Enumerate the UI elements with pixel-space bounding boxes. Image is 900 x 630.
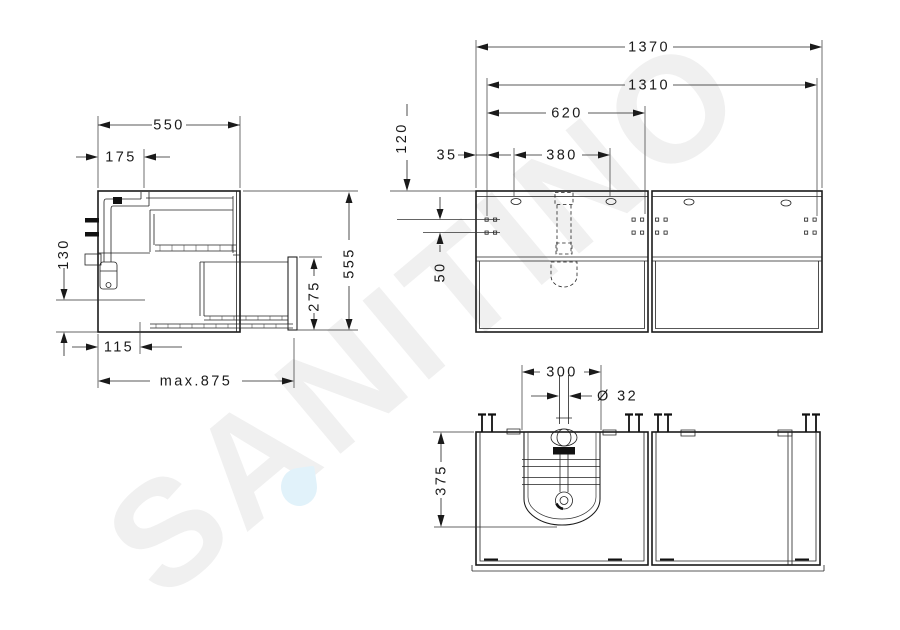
wall-stub-1: [85, 218, 99, 223]
rear-view: 1370 1310 620 35 380 120 50: [390, 40, 822, 333]
dim-side-drain-offset: 175: [105, 150, 136, 166]
dim-plan-drain-diameter: Ø 32: [597, 389, 638, 405]
dimension-drawing-page: SANITINO: [0, 0, 900, 630]
plan-right-module: [652, 432, 820, 565]
foot-marks: [484, 559, 809, 561]
hidden-siphon: [551, 193, 577, 288]
oval-cutout: [781, 200, 791, 206]
side-cabinet-outline: [98, 191, 240, 332]
oval-cutout: [511, 199, 521, 205]
rear-left-module: [476, 191, 648, 332]
dim-side-max-extension: max.875: [160, 374, 232, 390]
pipe-nut: [113, 197, 122, 204]
drawer-front-panel: [288, 257, 297, 330]
dim-side-drawer-front: 275: [307, 280, 323, 311]
siphon-trap: [100, 262, 117, 289]
side-view: 550 175 130 115 max.875 555 275: [56, 116, 358, 390]
dim-rear-hole-span: 620: [551, 106, 582, 122]
rear-right-module: [652, 191, 822, 332]
mounting-holes: [485, 218, 816, 234]
mounting-bolts: [478, 415, 820, 433]
oval-cutout: [684, 199, 694, 205]
oval-cutout: [606, 199, 616, 205]
plan-dimension-arrows: [438, 369, 602, 528]
dim-plan-cutout-width: 300: [546, 365, 577, 381]
rear-dimension-arrows: [404, 44, 823, 245]
dim-rear-mounting-span: 1310: [628, 78, 670, 94]
dim-rear-oval-span: 380: [546, 148, 577, 164]
dim-rear-overall-width: 1370: [628, 40, 670, 56]
plan-view: 300 Ø 32 375: [433, 365, 824, 572]
dim-side-outlet-height: 130: [56, 238, 72, 269]
technical-drawing: 550 175 130 115 max.875 555 275: [0, 0, 900, 630]
dim-side-width: 550: [153, 118, 184, 134]
dim-rear-row-gap: 50: [433, 262, 449, 283]
wall-stub-2: [85, 232, 99, 237]
dim-rear-top-to-hole: 120: [394, 122, 410, 153]
dim-plan-rear-depth: 375: [434, 464, 450, 495]
dim-side-height: 555: [342, 247, 358, 278]
dim-side-bottom-offset: 115: [104, 340, 134, 356]
dim-rear-edge-to-hole: 35: [437, 148, 458, 164]
